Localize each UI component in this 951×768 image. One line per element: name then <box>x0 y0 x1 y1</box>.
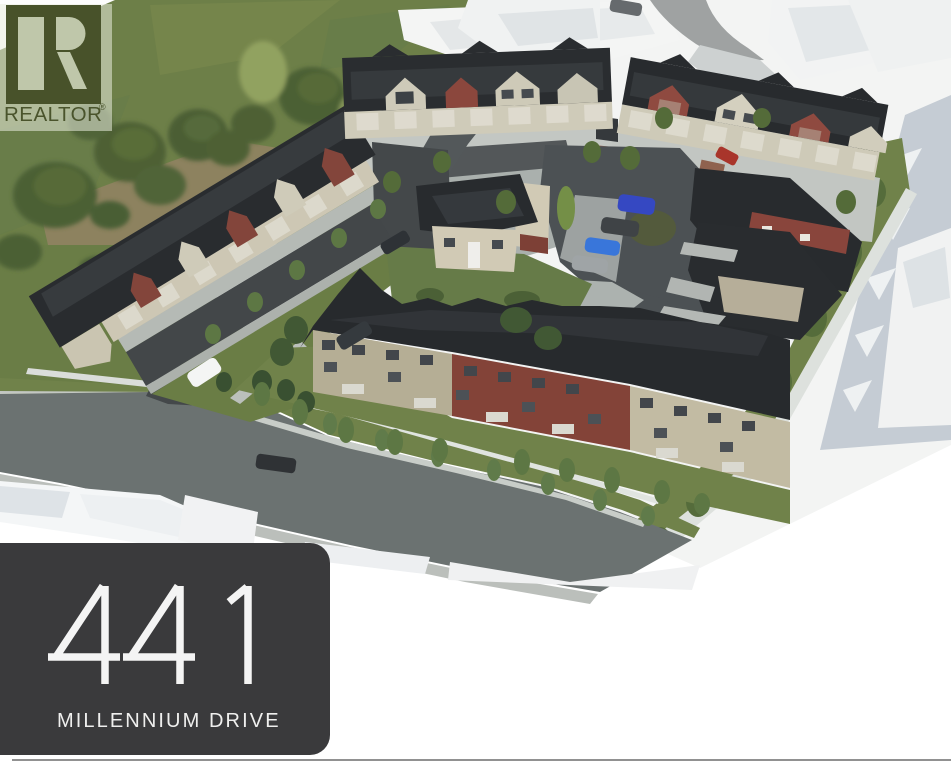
svg-text:MILLENNIUM DRIVE: MILLENNIUM DRIVE <box>57 710 281 732</box>
svg-text:®: ® <box>99 102 106 112</box>
svg-text:REALTOR: REALTOR <box>4 103 102 126</box>
